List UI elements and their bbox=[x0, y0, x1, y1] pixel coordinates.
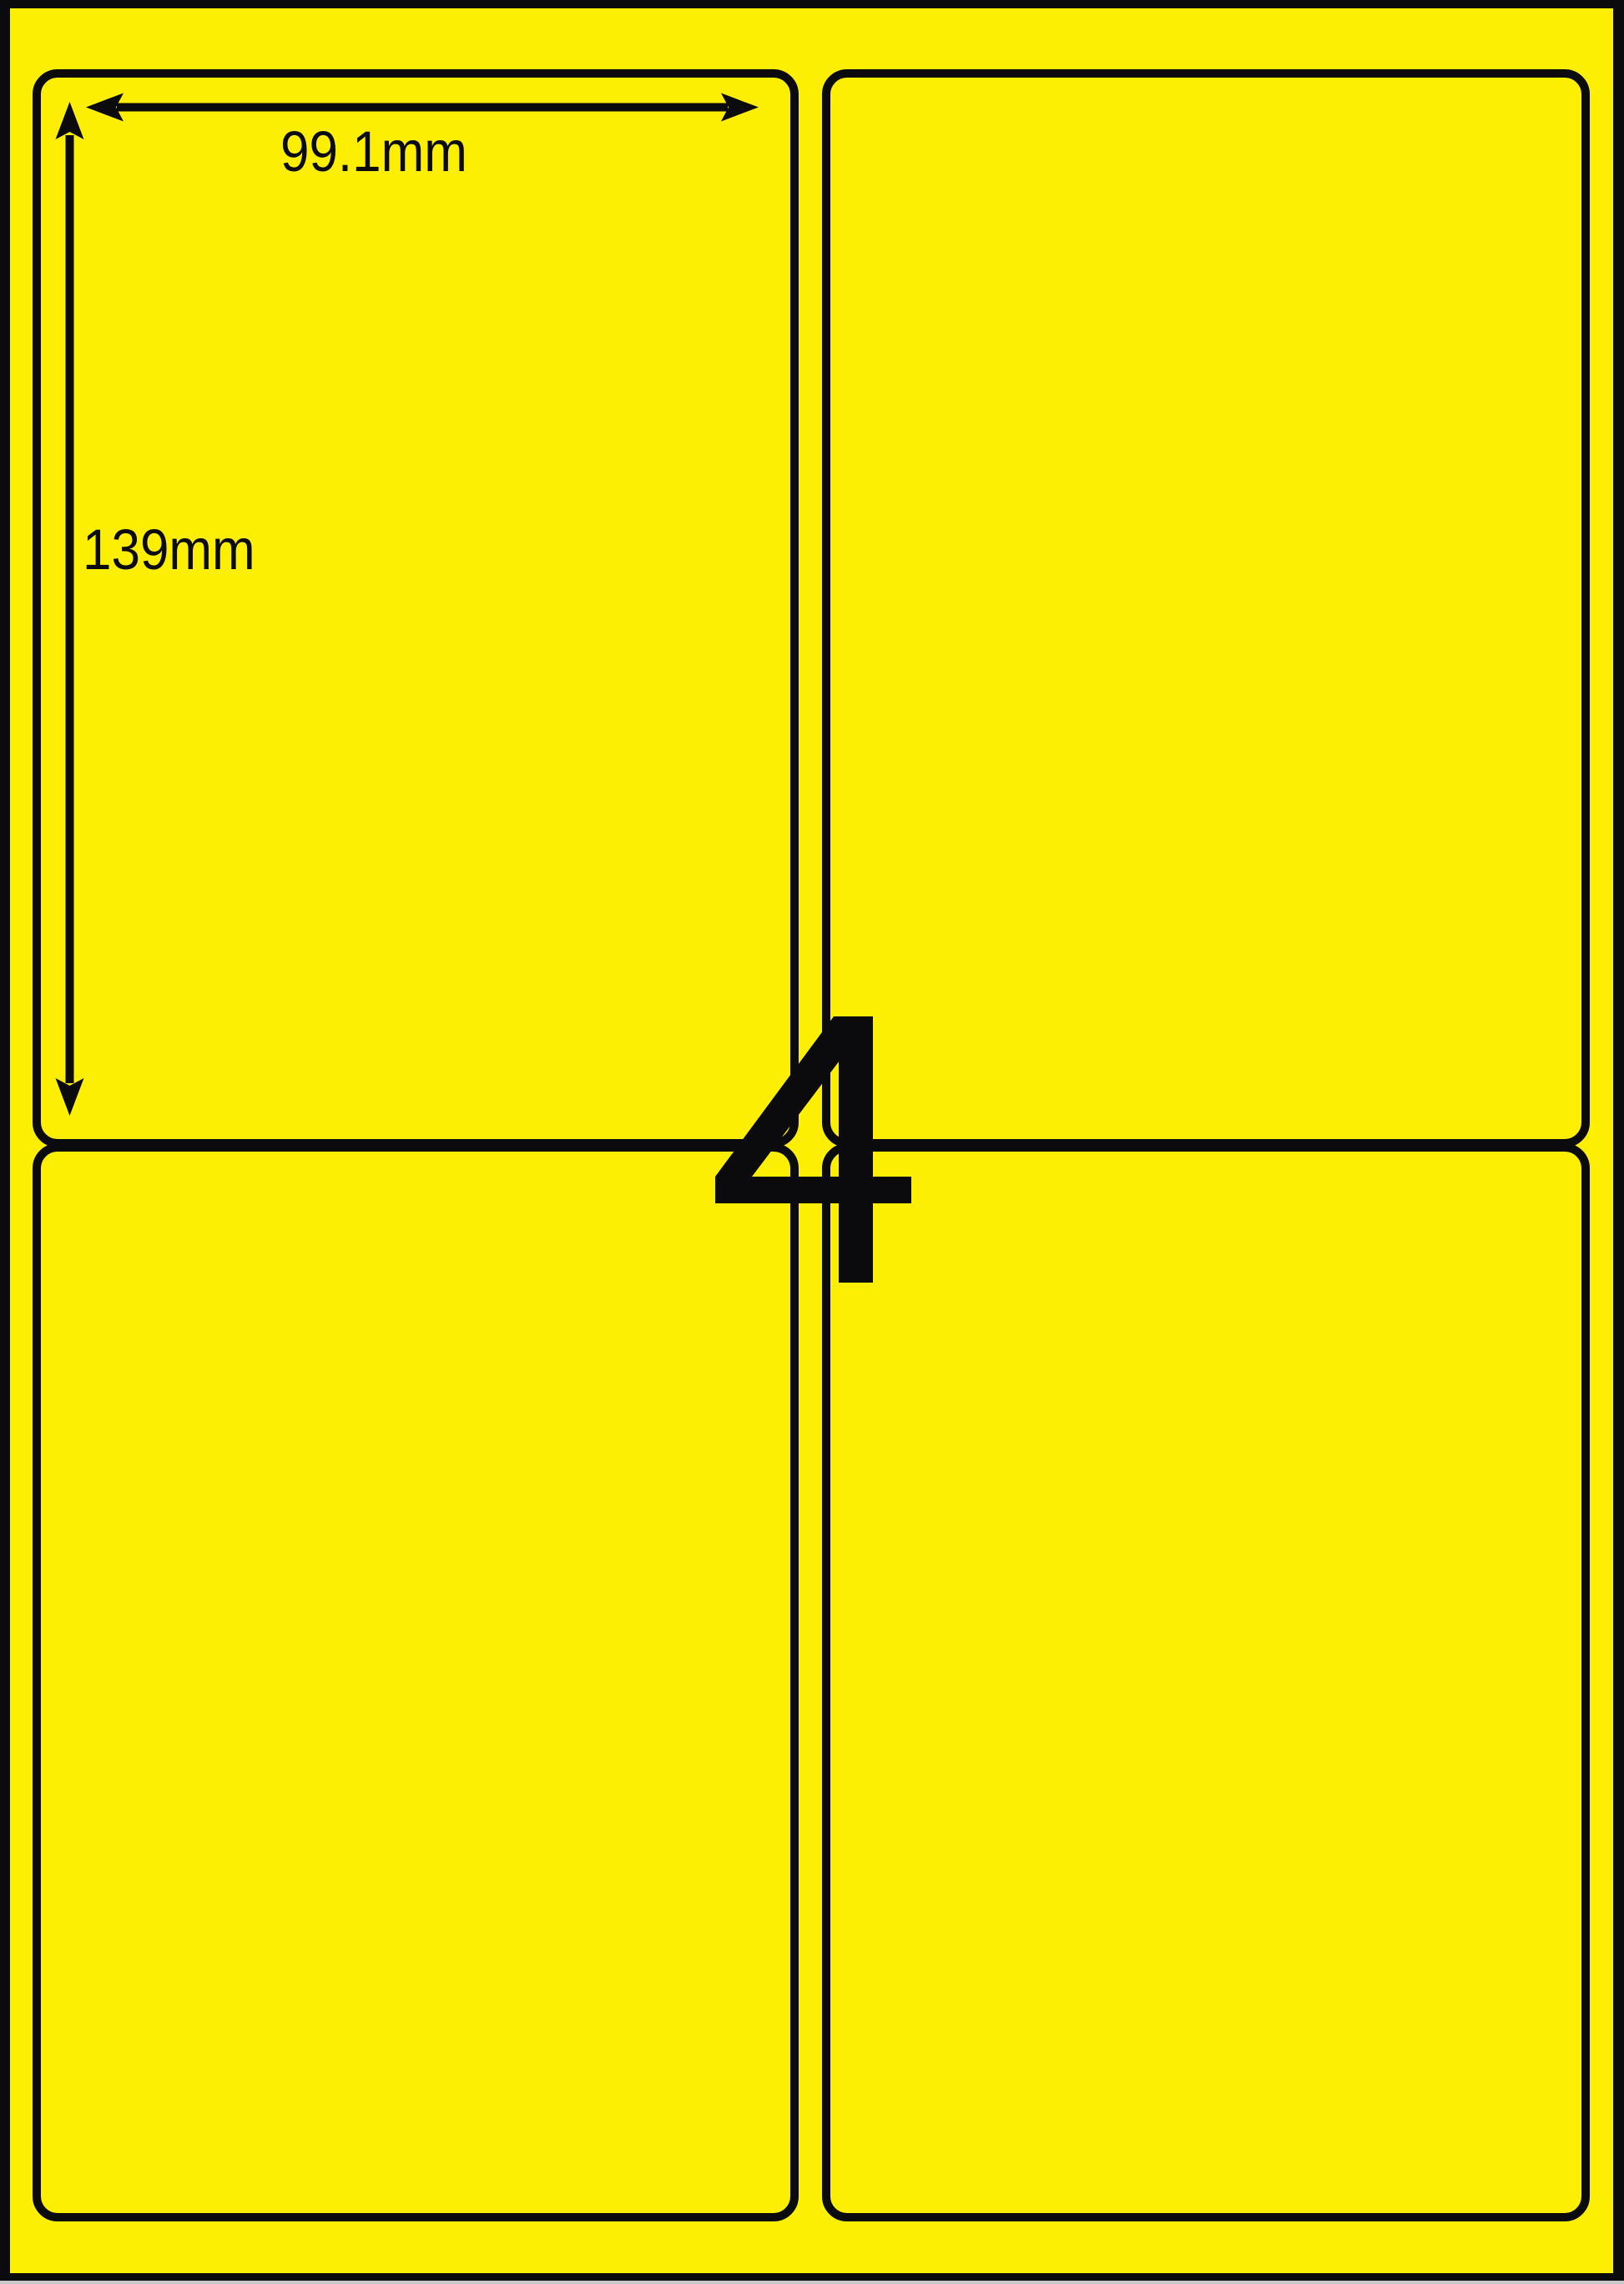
svg-text:99.1mm: 99.1mm bbox=[280, 119, 467, 183]
svg-text:139mm: 139mm bbox=[83, 517, 255, 581]
